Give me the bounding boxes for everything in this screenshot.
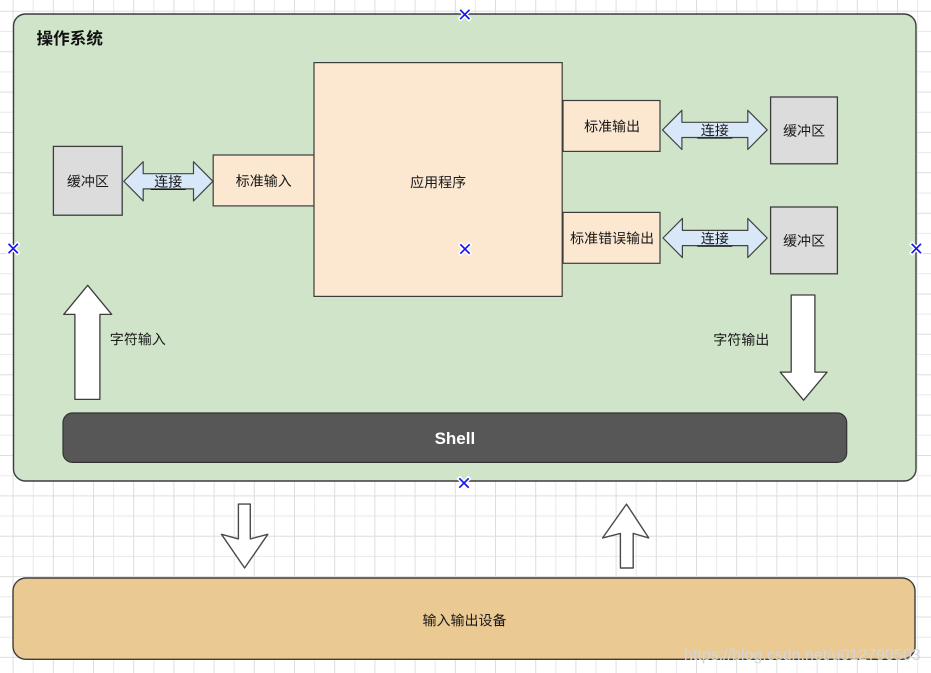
svg-text:Shell: Shell bbox=[435, 429, 476, 448]
svg-text:https://blog.csdn.net/u0127905: https://blog.csdn.net/u012790503 bbox=[684, 647, 921, 664]
